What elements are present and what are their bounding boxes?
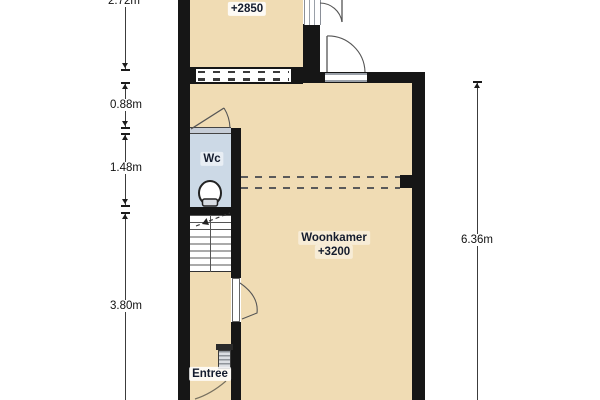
living-north-door-arc [327, 36, 365, 72]
dimension-arrow [474, 83, 480, 88]
dimension-tick [121, 69, 130, 71]
top-room-door-arc [320, 3, 342, 22]
living-room-label: Woonkamer [298, 231, 370, 245]
dim-label-3-80: 3.80m [108, 300, 144, 312]
dim-label-0-88: 0.88m [108, 99, 144, 111]
plan-symbols-overlay [0, 0, 600, 400]
dimension-arrow [122, 135, 128, 140]
dimension-arrow [122, 199, 128, 204]
dim-line-left-1 [125, 0, 126, 70]
dimension-tick [121, 127, 130, 129]
top-room-label: +2850 [228, 2, 266, 16]
stair-walkline-arrow [202, 218, 209, 225]
stair-walkline [196, 213, 230, 226]
understairs-door-arc [240, 283, 257, 319]
entry-door-arc [195, 381, 226, 399]
dim-label-1-48: 1.48m [108, 162, 144, 174]
dimension-arrow [122, 214, 128, 219]
wc-door-leaf [191, 108, 224, 129]
entry-label: Entree [189, 367, 231, 381]
wc-door-arc [224, 108, 230, 128]
living-room-height-label: +3200 [315, 245, 353, 259]
toilet-base [203, 199, 218, 206]
dim-label-6-36: 6.36m [459, 234, 495, 246]
floorplan-canvas: +2850 Wc Woonkamer +3200 Entree 2.72m 0.… [0, 0, 600, 400]
wc-label: Wc [200, 152, 223, 166]
dimension-arrow [122, 121, 128, 126]
dimension-arrow [122, 63, 128, 68]
dimension-arrow [122, 84, 128, 89]
dim-label-2-72: 2.72m [106, 0, 142, 7]
dimension-tick [121, 205, 130, 207]
